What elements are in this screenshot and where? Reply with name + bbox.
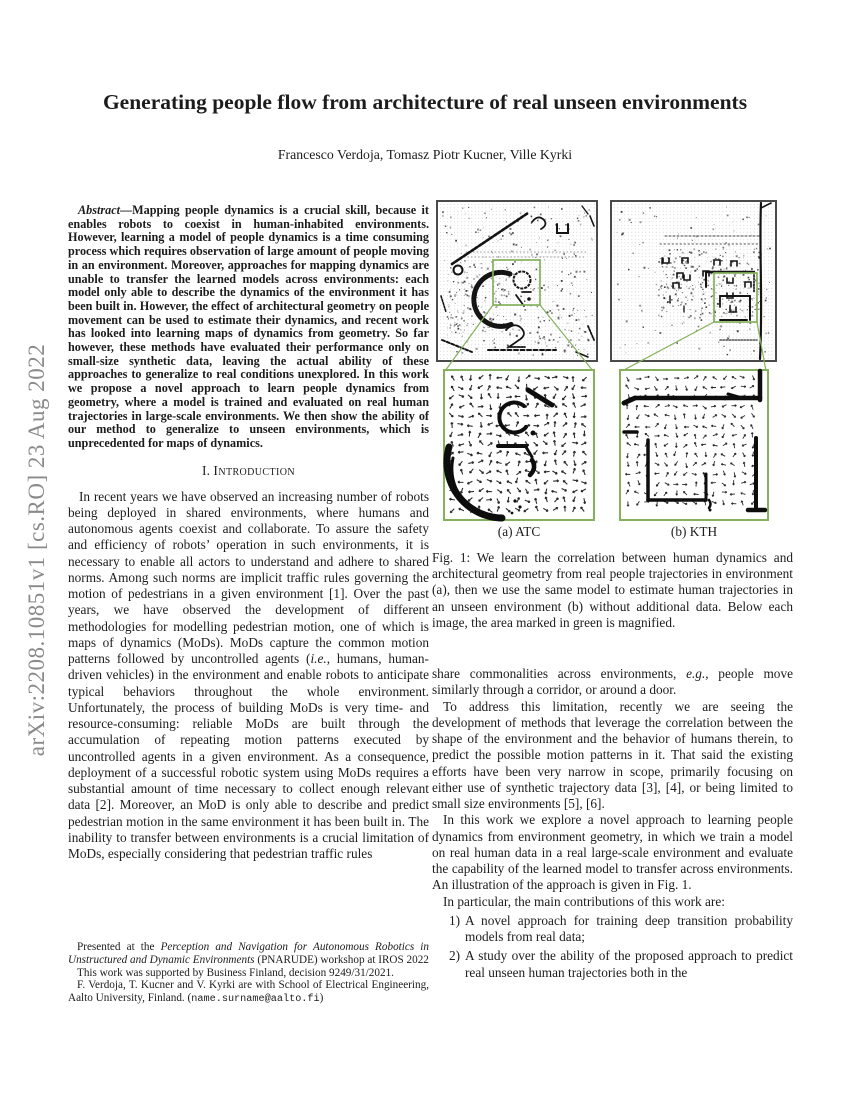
abstract: Abstract—Mapping people dynamics is a cr…: [68, 204, 429, 451]
paragraph-this-work: In this work we explore a novel approach…: [432, 812, 793, 893]
arxiv-watermark: arXiv:2208.10851v1 [cs.RO] 23 Aug 2022: [24, 344, 50, 757]
figure-row: (a) ATC (b) KTH: [436, 200, 793, 540]
item-text: A novel approach for training deep trans…: [465, 913, 793, 944]
intro-paragraph: In recent years we have observed an incr…: [68, 489, 429, 863]
subfigure-kth: (b) KTH: [610, 200, 778, 540]
kth-map-image: [610, 200, 778, 522]
atc-map-image: [436, 200, 602, 522]
right-column: (a) ATC (b) KTH Fig. 1: We learn the cor…: [432, 200, 793, 981]
section-heading: I. Introduction: [68, 463, 429, 479]
contribution-item-2: 2)A study over the ability of the propos…: [432, 948, 793, 981]
paragraph-share-commonalities: share commonalities across environments,…: [432, 666, 793, 699]
subcaption-kth: (b) KTH: [671, 524, 717, 540]
paper-page: arXiv:2208.10851v1 [cs.RO] 23 Aug 2022 G…: [0, 0, 850, 1100]
left-column: Abstract—Mapping people dynamics is a cr…: [68, 204, 429, 862]
footnote-workshop: Presented at the Perception and Navigati…: [68, 941, 429, 967]
paper-authors: Francesco Verdoja, Tomasz Piotr Kucner, …: [0, 147, 850, 163]
paragraph-contributions-intro: In particular, the main contributions of…: [432, 894, 793, 910]
subcaption-atc: (a) ATC: [498, 524, 540, 540]
footnote-affiliation: F. Verdoja, T. Kucner and V. Kyrki are w…: [68, 979, 429, 1007]
footnote-funding: This work was supported by Business Finl…: [68, 967, 429, 980]
section-title: Introduction: [213, 463, 295, 478]
item-text: A study over the ability of the proposed…: [465, 948, 793, 979]
contributions-list: 1)A novel approach for training deep tra…: [432, 913, 793, 981]
contribution-item-1: 1)A novel approach for training deep tra…: [432, 913, 793, 946]
paper-title: Generating people flow from architecture…: [0, 90, 850, 115]
item-number: 1): [449, 913, 460, 929]
paragraph-address-limitation: To address this limitation, recently we …: [432, 699, 793, 813]
figure-caption: Fig. 1: We learn the correlation between…: [432, 550, 793, 631]
footnote-block: Presented at the Perception and Navigati…: [68, 941, 429, 1007]
item-number: 2): [449, 948, 460, 964]
subfigure-atc: (a) ATC: [436, 200, 602, 540]
section-number: I.: [202, 463, 210, 478]
figure-1: (a) ATC (b) KTH Fig. 1: We learn the cor…: [432, 200, 793, 631]
